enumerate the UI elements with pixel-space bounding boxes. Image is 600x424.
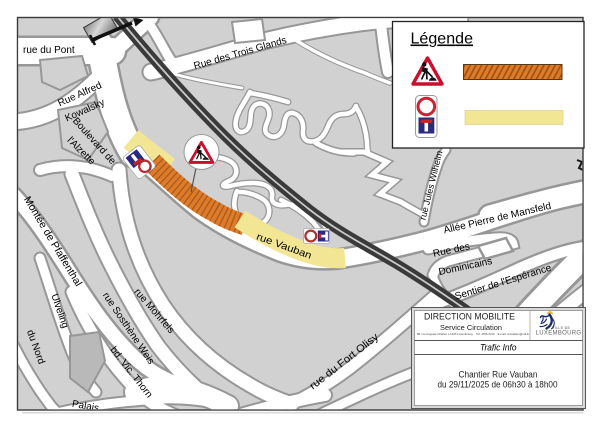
svg-text:98, rue Auguste Charles L-1326: 98, rue Auguste Charles L-1326 Luxembour… — [417, 332, 529, 336]
svg-text:du 29/11/2025 de 06h30 à 18h00: du 29/11/2025 de 06h30 à 18h00 — [438, 380, 558, 390]
svg-text:Trafic Info: Trafic Info — [480, 343, 517, 353]
svg-text:rue du Pont: rue du Pont — [23, 45, 75, 56]
svg-text:Service Circulation: Service Circulation — [440, 323, 502, 332]
svg-text:DIRECTION MOBILITE: DIRECTION MOBILITE — [424, 312, 515, 322]
svg-text:Légende: Légende — [411, 31, 474, 48]
svg-text:VILLE DE: VILLE DE — [552, 326, 570, 330]
svg-text:LUXEMBOURG: LUXEMBOURG — [536, 331, 582, 337]
svg-text:Chantier Rue Vauban: Chantier Rue Vauban — [459, 370, 538, 380]
